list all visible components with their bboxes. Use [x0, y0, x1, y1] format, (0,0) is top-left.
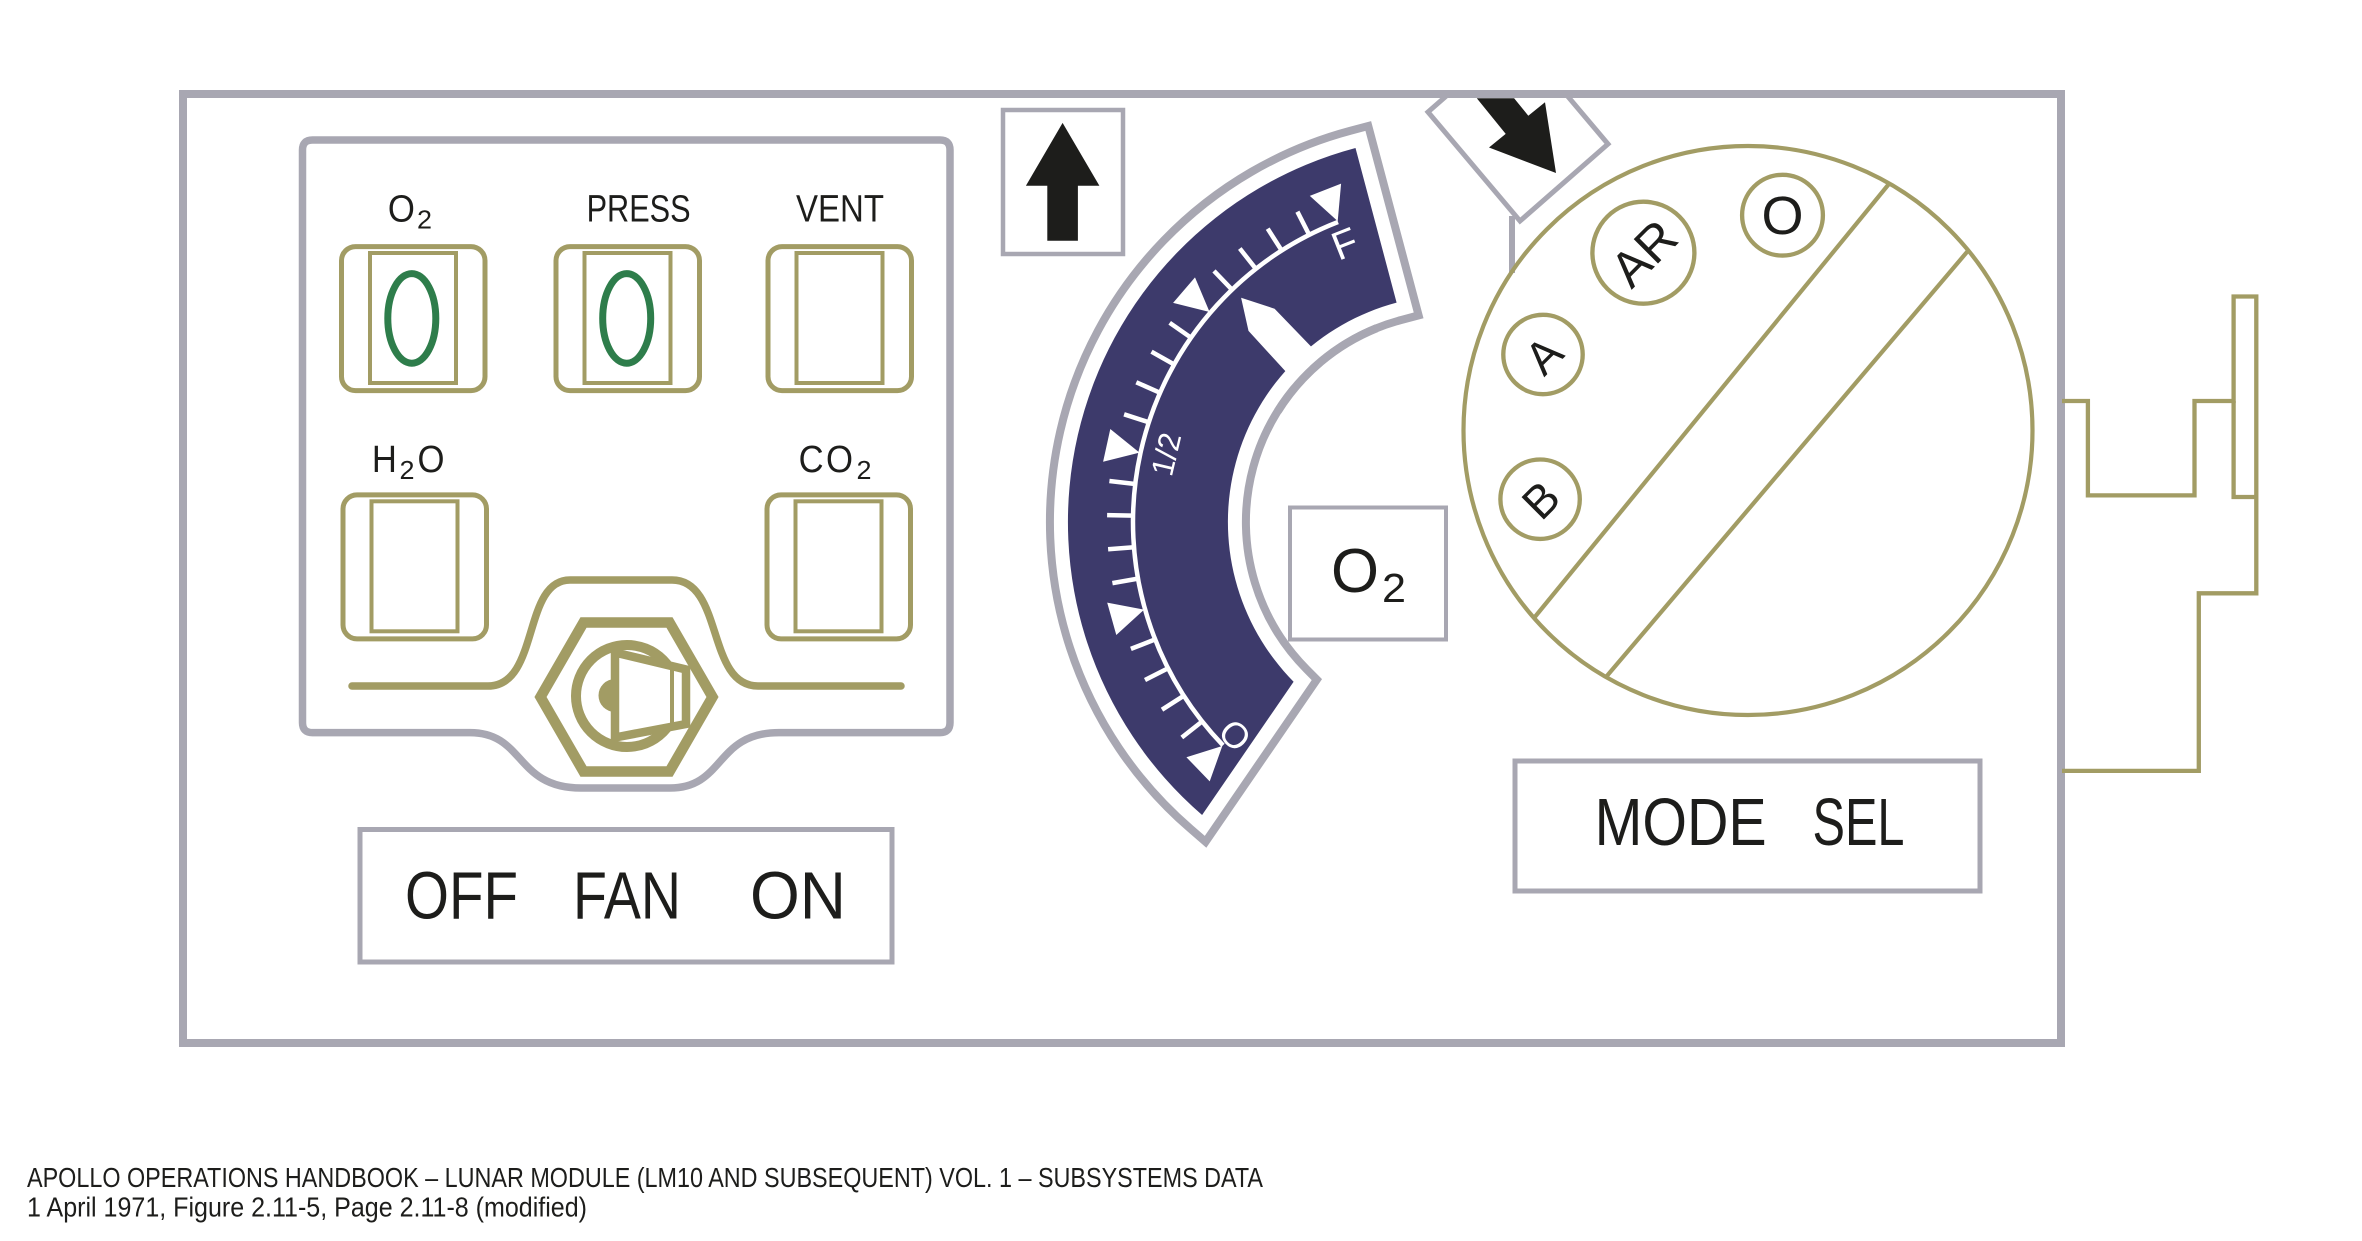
svg-text:PRESS: PRESS	[587, 188, 691, 230]
svg-text:OFF: OFF	[405, 859, 518, 934]
svg-text:ON: ON	[750, 859, 846, 934]
svg-text:1 April 1971, Figure 2.11-5, P: 1 April 1971, Figure 2.11-5, Page 2.11-8…	[27, 1192, 587, 1223]
svg-text:2: 2	[1382, 565, 1406, 611]
svg-text:2: 2	[400, 455, 415, 485]
svg-text:FAN: FAN	[573, 859, 681, 934]
svg-text:SEL: SEL	[1813, 785, 1905, 860]
svg-text:O: O	[388, 188, 415, 230]
svg-text:VENT: VENT	[796, 188, 884, 230]
svg-text:APOLLO OPERATIONS HANDBOOK – L: APOLLO OPERATIONS HANDBOOK – LUNAR MODUL…	[27, 1162, 1263, 1193]
svg-text:2: 2	[857, 455, 872, 485]
svg-text:O: O	[1761, 186, 1803, 246]
svg-text:H: H	[372, 439, 397, 481]
svg-text:C: C	[799, 439, 824, 481]
svg-text:O: O	[826, 439, 853, 481]
svg-text:O: O	[1331, 537, 1379, 606]
svg-text:2: 2	[417, 205, 432, 235]
svg-text:MODE: MODE	[1595, 785, 1767, 860]
svg-text:O: O	[418, 439, 445, 481]
